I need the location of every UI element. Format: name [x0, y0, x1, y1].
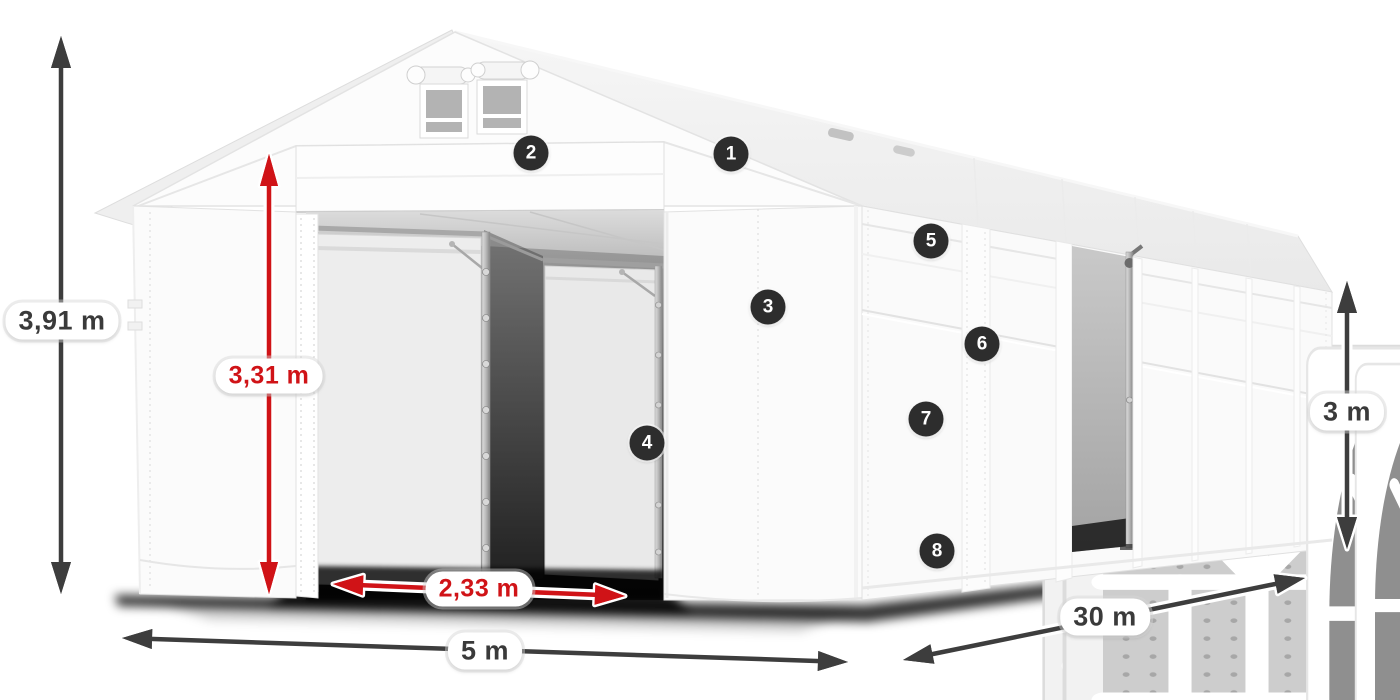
- tent-illustration: [0, 0, 1400, 700]
- callout-badge-7[interactable]: 7: [909, 402, 944, 437]
- entrance-header: [296, 142, 664, 214]
- dimension-label-wall-height: 3 m: [1310, 394, 1384, 431]
- side-door-opening: [1072, 246, 1142, 552]
- callout-badge-5[interactable]: 5: [914, 224, 949, 259]
- dimension-label-total-height: 3,91 m: [5, 303, 118, 340]
- dimension-label-side-length: 30 m: [1060, 599, 1150, 636]
- callout-badge-1[interactable]: 1: [714, 137, 749, 172]
- callout-badge-3[interactable]: 3: [751, 290, 786, 325]
- front-right-wall: [664, 206, 862, 601]
- dimension-label-entrance-height: 3,31 m: [216, 359, 323, 394]
- callout-badge-4[interactable]: 4: [630, 426, 665, 461]
- front-left-wall: [128, 206, 318, 598]
- dimension-label-entrance-width: 2,33 m: [426, 572, 533, 607]
- callout-badge-8[interactable]: 8: [920, 534, 955, 569]
- product-dimension-diagram: 3,91 m 3,31 m 2,33 m 5 m 30 m 3 m 1 2 3 …: [0, 0, 1400, 700]
- callout-badge-6[interactable]: 6: [965, 327, 1000, 362]
- dimension-label-front-width: 5 m: [448, 633, 522, 670]
- callout-badge-2[interactable]: 2: [514, 136, 549, 171]
